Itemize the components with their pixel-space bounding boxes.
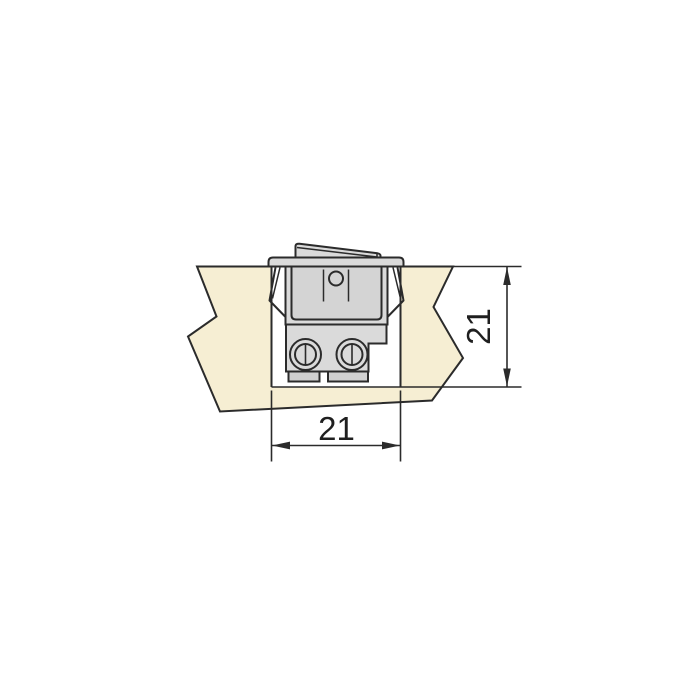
arrowhead-bottom bbox=[503, 369, 511, 387]
pivot-hole bbox=[329, 272, 343, 286]
mounting-flange bbox=[269, 258, 404, 267]
arrowhead-left bbox=[272, 442, 290, 450]
terminal-screw-left bbox=[290, 339, 321, 370]
terminal-screw-right bbox=[337, 339, 368, 370]
technical-drawing: 21 21 bbox=[0, 0, 700, 700]
height-dimension: 21 bbox=[460, 267, 511, 387]
terminal-tab-left bbox=[289, 372, 320, 382]
drawing-canvas: 21 21 bbox=[0, 0, 700, 700]
arrowhead-top bbox=[503, 267, 511, 285]
height-dimension-label: 21 bbox=[460, 308, 497, 345]
terminal-tab-right bbox=[328, 372, 368, 382]
arrowhead-right bbox=[382, 442, 400, 450]
width-dimension-label: 21 bbox=[318, 410, 355, 447]
